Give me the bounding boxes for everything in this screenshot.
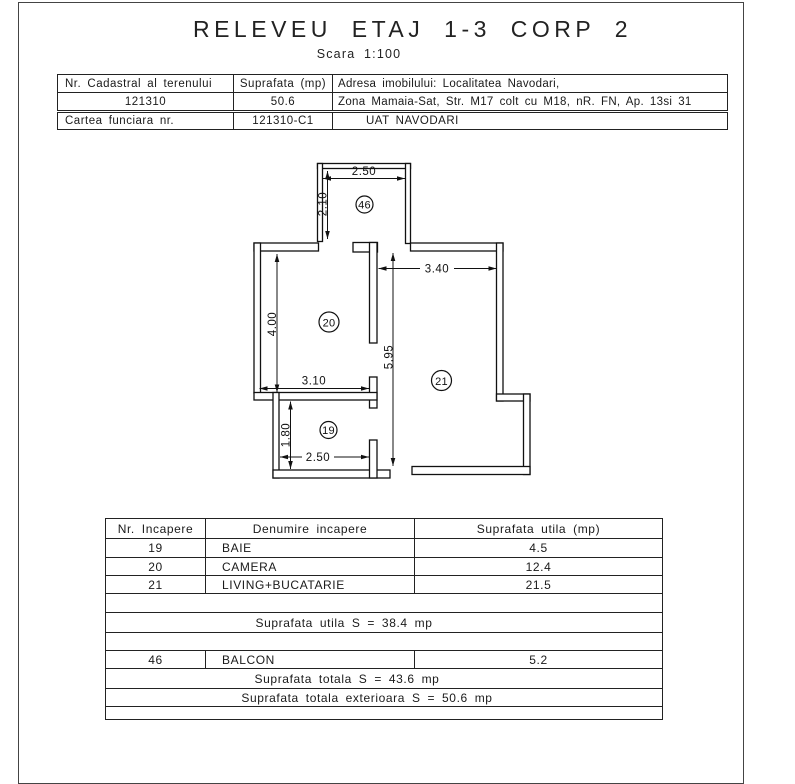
wall-bottom-right [412, 467, 530, 475]
room-area: 21.5 [415, 578, 662, 592]
cadastral-number: 121310 [57, 92, 234, 111]
address-line-1: Adresa imobilului: Localitatea Navodari, [332, 74, 728, 93]
room-name: BAIE [206, 539, 415, 557]
rooms-table: Nr. Incapere Denumire incapere Suprafata… [105, 518, 663, 720]
dim-balcony-depth: 2.10 [318, 192, 330, 216]
room-number-balcon: 46 [358, 200, 371, 212]
table-row: 20 CAMERA 12.4 [106, 558, 662, 576]
room-area: 5.2 [415, 653, 662, 667]
room-nr: 19 [106, 539, 206, 557]
address-line-2: Zona Mamaia-Sat, Str. M17 colt cu M18, n… [332, 92, 728, 111]
walls [254, 164, 530, 479]
room-name: CAMERA [206, 558, 415, 575]
header-suprafata-utila: Suprafata utila (mp) [415, 522, 662, 536]
room-nr: 21 [106, 576, 206, 593]
floor-plan: 2.50 2.10 3.40 5.95 4.00 3.10 1.80 2.50 … [230, 155, 550, 495]
uat-label: UAT NAVODARI [332, 112, 728, 130]
total-exterior-row: Suprafata totala exterioara S = 50.6 mp [106, 689, 662, 707]
room-nr: 20 [106, 558, 206, 575]
total-row: Suprafata totala S = 43.6 mp [106, 669, 662, 689]
room-number-living: 21 [435, 376, 448, 388]
land-book-label: Cartea funciara nr. [57, 112, 234, 130]
total-text: Suprafata totala S = 43.6 mp [106, 672, 662, 686]
dim-camera-width: 3.10 [302, 376, 326, 388]
empty-row [106, 707, 662, 719]
cadastral-area-value: 50.6 [233, 92, 333, 111]
wall-divider-upper [370, 243, 378, 344]
room-area: 4.5 [415, 541, 662, 555]
scale-label: Scara 1:100 [0, 47, 718, 61]
wall-right-lower [524, 394, 531, 475]
dim-living-width: 3.40 [425, 264, 449, 276]
empty-row [106, 594, 662, 613]
dim-balcony-width: 2.50 [352, 166, 376, 178]
empty-row [106, 633, 662, 651]
room-area: 12.4 [415, 560, 662, 574]
header-nr-incapere: Nr. Incapere [106, 519, 206, 538]
dim-baie-width: 2.50 [306, 452, 330, 464]
wall-left-outer [254, 243, 261, 393]
header-denumire: Denumire incapere [206, 519, 415, 538]
subtotal-text: Suprafata utila S = 38.4 mp [106, 616, 662, 630]
dim-baie-depth: 1.80 [281, 423, 293, 447]
wall-baie-right [370, 440, 378, 478]
wall-baie-left [273, 393, 279, 479]
dim-apartment-depth: 5.95 [384, 345, 396, 369]
wall-right-upper [497, 243, 504, 401]
total-exterior-text: Suprafata totala exterioara S = 50.6 mp [106, 691, 662, 705]
table-row: 19 BAIE 4.5 [106, 539, 662, 558]
dim-camera-depth: 4.00 [267, 312, 279, 336]
subtotal-row: Suprafata utila S = 38.4 mp [106, 613, 662, 633]
wall-balcony-right [406, 164, 411, 244]
room-nr: 46 [106, 651, 206, 668]
rooms-table-header: Nr. Incapere Denumire incapere Suprafata… [106, 519, 662, 539]
cadastral-header-suprafata: Suprafata (mp) [233, 74, 333, 93]
room-name: LIVING+BUCATARIE [206, 576, 415, 593]
dimension-lines [260, 171, 497, 469]
page-title: RELEVEU ETAJ 1-3 CORP 2 [30, 16, 795, 43]
wall-top-left [254, 243, 319, 251]
table-row-balcon: 46 BALCON 5.2 [106, 651, 662, 669]
room-number-baie: 19 [322, 425, 335, 437]
wall-top-right [411, 243, 504, 251]
room-number-camera: 20 [323, 318, 336, 330]
room-name: BALCON [206, 651, 415, 668]
land-book-number: 121310-C1 [233, 112, 333, 130]
table-row: 21 LIVING+BUCATARIE 21.5 [106, 576, 662, 594]
cadastral-header-nr: Nr. Cadastral al terenului [57, 74, 234, 93]
